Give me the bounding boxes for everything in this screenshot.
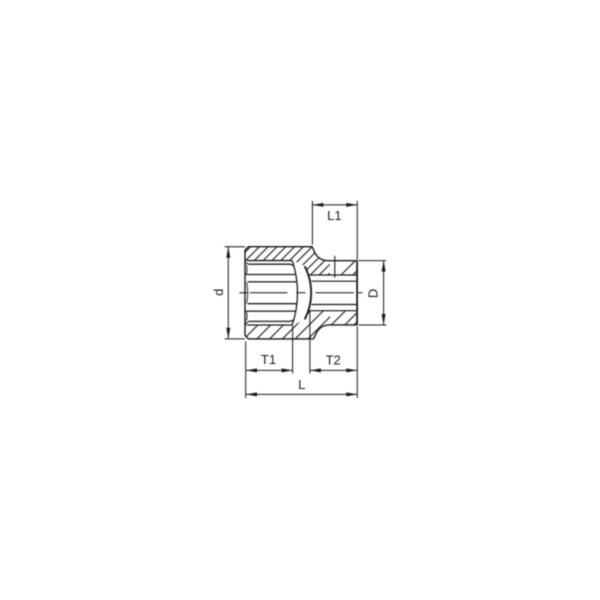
- svg-text:d: d: [211, 289, 226, 296]
- svg-text:L: L: [298, 377, 305, 392]
- svg-text:T1: T1: [261, 352, 276, 367]
- svg-text:L1: L1: [327, 208, 341, 223]
- svg-text:D: D: [366, 289, 381, 298]
- svg-text:T2: T2: [326, 352, 341, 367]
